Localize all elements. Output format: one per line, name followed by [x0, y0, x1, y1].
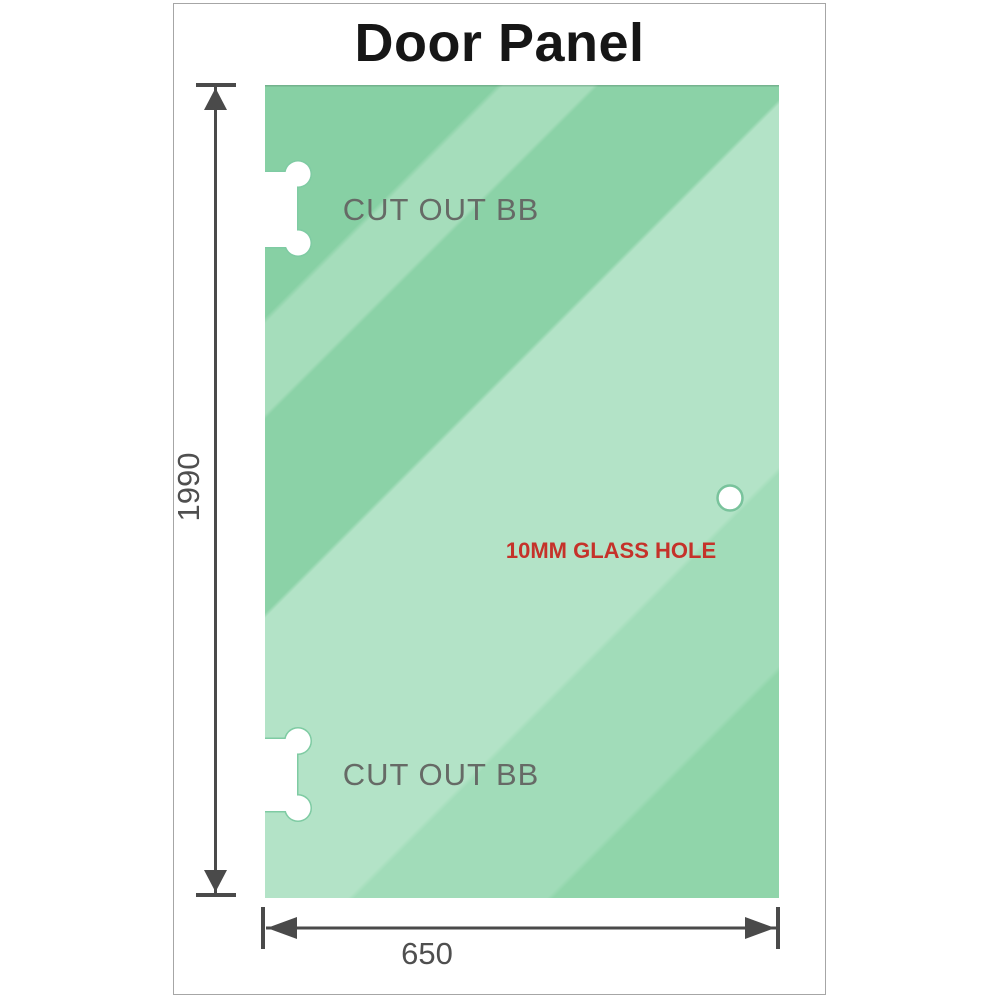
cutout-label-bottom: CUT OUT BB [343, 757, 540, 793]
glass-panel-top-edge [265, 85, 779, 87]
product-diagram-canvas: Door Panel [0, 0, 1000, 1000]
width-dimension [261, 907, 780, 949]
width-dimension-value: 650 [401, 936, 453, 972]
glass-hole-label: 10MM GLASS HOLE [506, 538, 716, 564]
height-dim-tick-bottom [196, 893, 236, 897]
width-dim-tick-left [261, 907, 265, 949]
door-panel-drawing [0, 0, 1000, 1000]
height-dim-line [214, 87, 217, 893]
height-dim-tick-top [196, 83, 236, 87]
glass-hole [718, 486, 743, 511]
cutout-label-top: CUT OUT BB [343, 192, 540, 228]
width-dim-arrow-right-icon [745, 917, 775, 939]
height-dimension-value: 1990 [171, 453, 207, 522]
height-dim-arrow-up-icon [204, 88, 227, 110]
height-dim-arrow-down-icon [204, 870, 227, 892]
width-dim-line [266, 927, 777, 930]
width-dim-arrow-left-icon [267, 917, 297, 939]
